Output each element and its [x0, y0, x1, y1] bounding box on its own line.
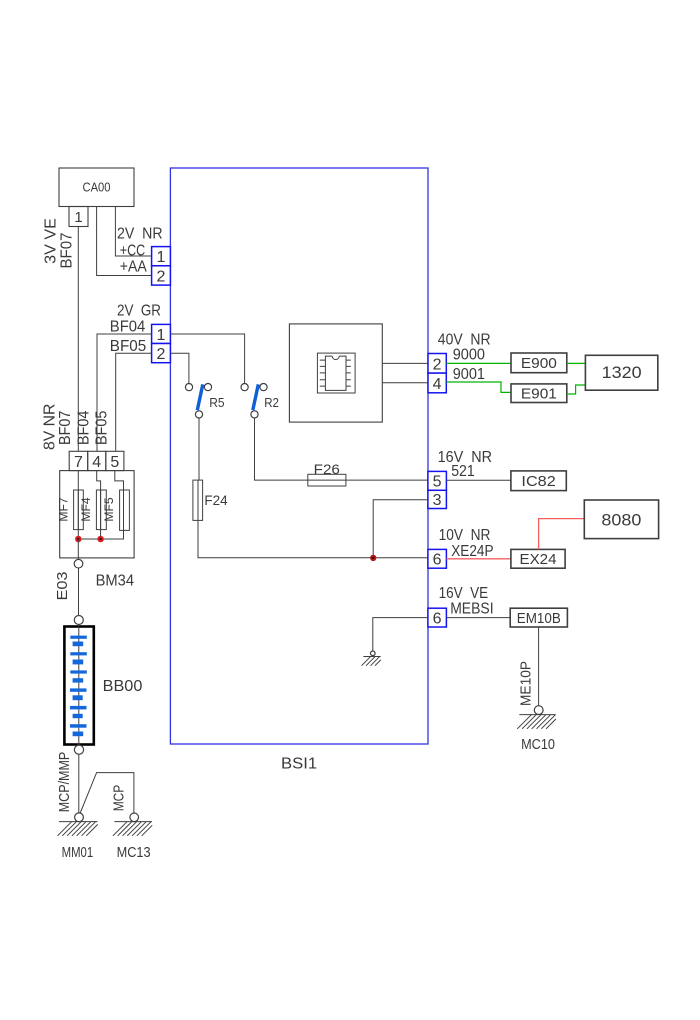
svg-text:2V GR: 2V GR [117, 303, 161, 320]
svg-text:3: 3 [433, 492, 442, 509]
svg-text:10V NR: 10V NR [439, 527, 491, 544]
svg-text:+CC: +CC [120, 243, 145, 260]
svg-text:1: 1 [157, 249, 166, 266]
svg-text:2: 2 [157, 268, 166, 285]
svg-text:+AA: +AA [120, 259, 147, 276]
svg-text:BF05: BF05 [94, 411, 111, 445]
svg-text:E901: E901 [521, 385, 557, 402]
svg-text:MCP: MCP [111, 785, 128, 812]
svg-text:1320: 1320 [602, 363, 642, 382]
svg-text:8V NR: 8V NR [42, 404, 59, 450]
svg-text:F26: F26 [314, 461, 340, 477]
svg-text:ME10P: ME10P [518, 661, 535, 706]
svg-text:MC13: MC13 [117, 844, 151, 861]
svg-text:EX24: EX24 [520, 551, 557, 568]
svg-text:9001: 9001 [453, 366, 485, 383]
svg-text:3V VE: 3V VE [43, 218, 60, 264]
svg-text:E03: E03 [54, 572, 71, 601]
svg-text:MM01: MM01 [62, 844, 94, 861]
svg-text:MF5: MF5 [102, 497, 116, 522]
svg-text:4: 4 [92, 454, 101, 471]
svg-text:7: 7 [74, 454, 83, 471]
svg-text:R5: R5 [209, 395, 224, 410]
svg-text:1: 1 [157, 327, 166, 344]
svg-text:16V VE: 16V VE [439, 585, 489, 602]
svg-text:CA00: CA00 [83, 180, 111, 195]
svg-text:BF07: BF07 [57, 411, 74, 445]
svg-text:5: 5 [110, 454, 119, 471]
svg-text:9000: 9000 [453, 347, 485, 364]
svg-text:521: 521 [451, 463, 475, 480]
svg-text:BB00: BB00 [103, 678, 143, 695]
svg-text:2V NR: 2V NR [117, 225, 163, 242]
svg-text:R2: R2 [264, 395, 279, 410]
svg-text:4: 4 [433, 376, 442, 393]
svg-text:MF7: MF7 [56, 497, 70, 522]
svg-text:5: 5 [433, 473, 442, 490]
svg-text:BM34: BM34 [96, 573, 134, 590]
svg-text:1: 1 [74, 209, 82, 226]
svg-text:BF05: BF05 [110, 338, 146, 355]
svg-text:2: 2 [157, 346, 166, 363]
svg-text:MF4: MF4 [79, 497, 93, 522]
svg-text:EM10B: EM10B [517, 610, 561, 627]
svg-text:MCP/MMP: MCP/MMP [56, 752, 73, 813]
svg-text:2: 2 [433, 356, 442, 373]
svg-text:E900: E900 [521, 355, 557, 372]
svg-text:6: 6 [433, 610, 442, 627]
svg-text:BSI1: BSI1 [281, 756, 317, 773]
svg-text:F24: F24 [204, 492, 227, 508]
svg-text:BF04: BF04 [110, 318, 146, 335]
svg-text:MEBSI: MEBSI [450, 601, 493, 618]
svg-text:BF07: BF07 [59, 232, 76, 268]
svg-text:IC82: IC82 [521, 473, 555, 490]
svg-text:BF04: BF04 [75, 411, 92, 445]
svg-text:8080: 8080 [601, 511, 641, 530]
svg-text:MC10: MC10 [521, 736, 555, 753]
svg-text:XE24P: XE24P [451, 543, 493, 560]
svg-text:6: 6 [433, 552, 442, 569]
